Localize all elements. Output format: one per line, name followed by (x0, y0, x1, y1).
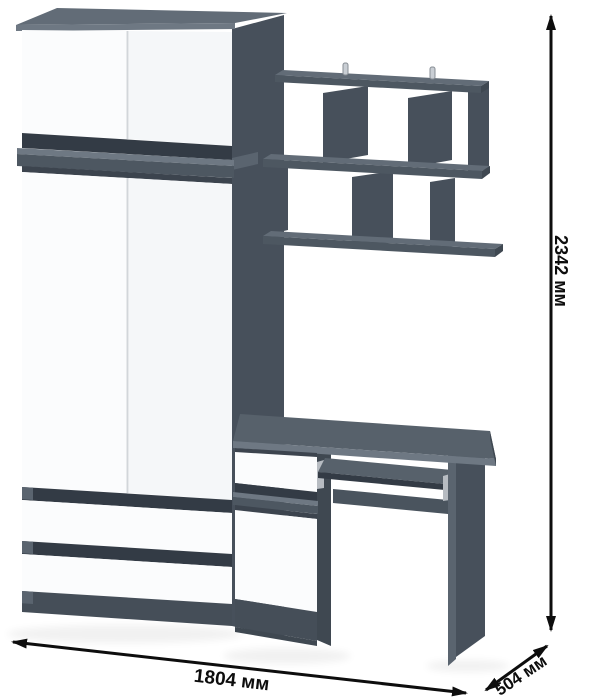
pedestal-shadow (223, 648, 351, 664)
wall-shelf (263, 63, 503, 257)
desk-leg-front-edge (448, 451, 456, 666)
shelf-left-end-panel (263, 163, 288, 236)
shelf-divider (408, 91, 452, 168)
wardrobe-strip-cap-2 (22, 541, 33, 554)
furniture-diagram: 2342 мм 1804 мм 504 мм (0, 0, 615, 700)
wardrobe-upper-door-left (22, 30, 126, 139)
wardrobe-main-door-right (129, 178, 232, 500)
shelf-right-end-panel (468, 84, 489, 176)
wardrobe-plinth-cap (22, 591, 33, 604)
computer-desk (233, 414, 496, 666)
shelf-divider (323, 86, 368, 163)
wardrobe-strip-cap-1 (22, 487, 33, 500)
shelf-mounting-hook (343, 63, 348, 75)
desk-cabinet-door (235, 510, 317, 612)
shelf-mounting-hook (430, 67, 435, 79)
wardrobe-main-door-left (22, 172, 126, 493)
furniture-diagram-canvas: 2342 мм 1804 мм 504 мм (0, 0, 615, 700)
wardrobe-top-panel (16, 8, 287, 25)
wardrobe-upper-door-right (129, 31, 232, 146)
wardrobe-shadow (7, 625, 243, 643)
dimension-depth: 504 мм (486, 646, 550, 700)
dimension-width: 1804 мм (13, 642, 466, 695)
dimension-height: 2342 мм (551, 16, 571, 630)
desk-leg-side (456, 444, 485, 657)
desk-leg-shadow (426, 660, 510, 672)
depth-dimension-label: 504 мм (491, 651, 550, 699)
height-dimension-label: 2342 мм (551, 235, 571, 307)
desk-back-panel (333, 489, 448, 514)
